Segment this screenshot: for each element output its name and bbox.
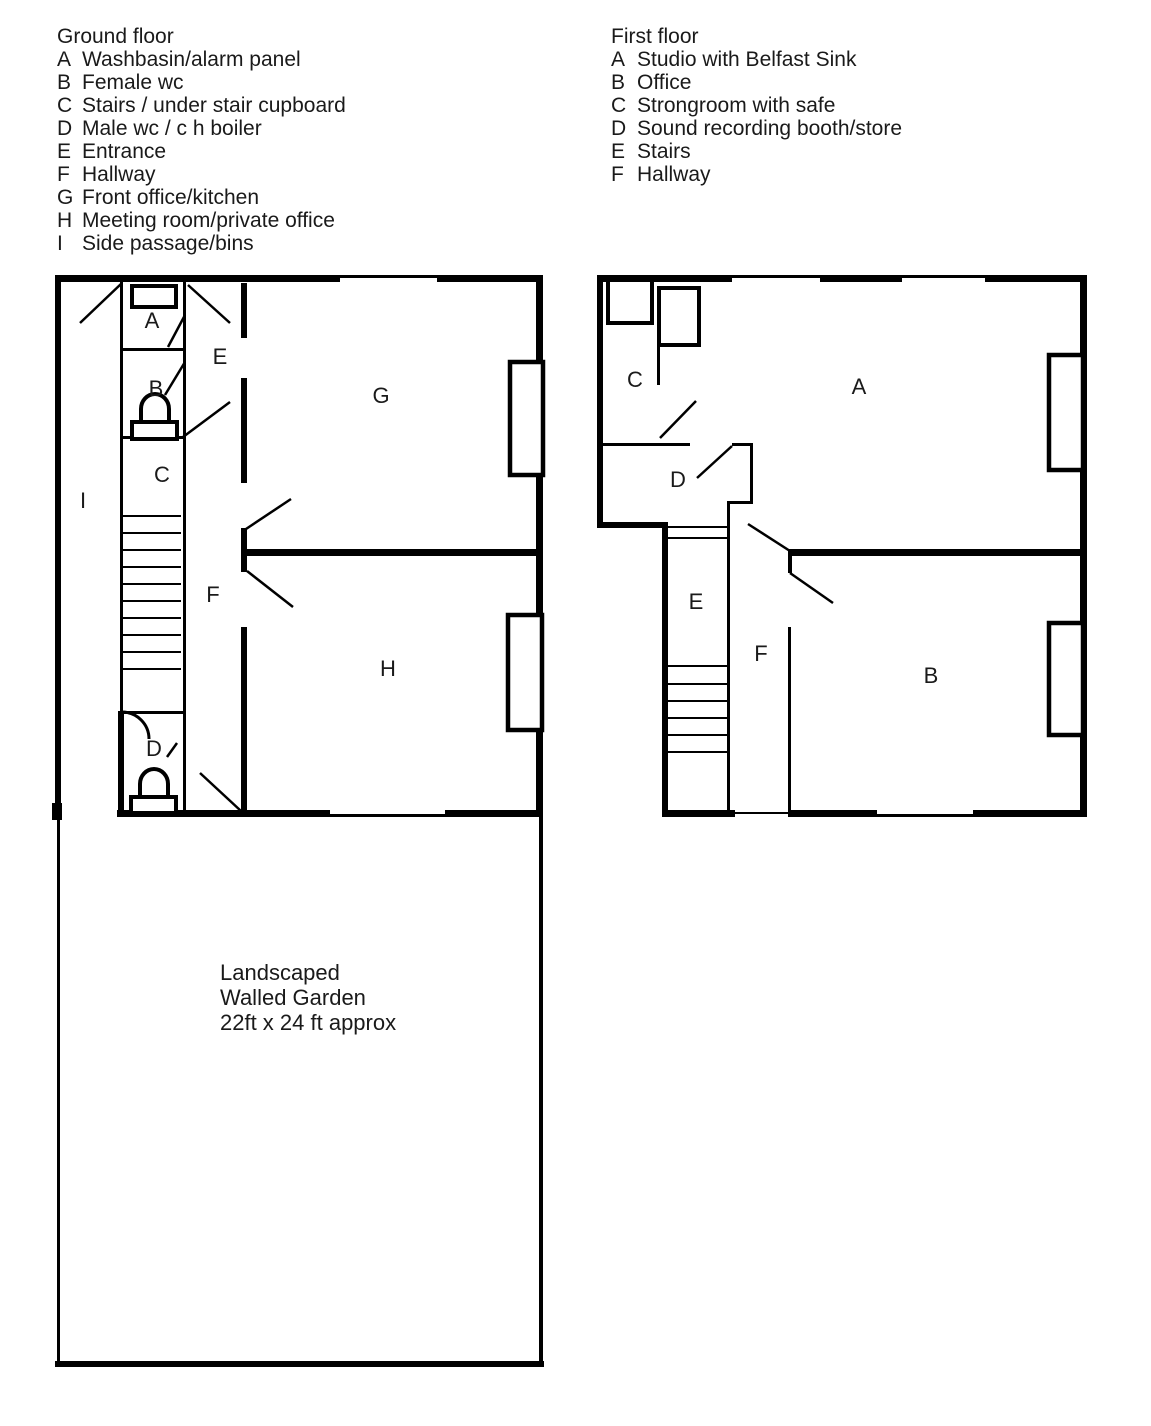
room-label-f: F (206, 582, 219, 607)
room-label-b: B (149, 376, 164, 401)
room-label-f: F (754, 641, 767, 666)
window-bottom-h (330, 814, 445, 817)
ground-floor-stairs (120, 515, 181, 670)
ground-floor-door-swings (80, 283, 293, 811)
room-label-i: I (80, 488, 86, 513)
room-label-d: D (670, 467, 686, 492)
window-top-right (902, 275, 985, 278)
window-room-a (1049, 355, 1083, 470)
room-label-a: A (145, 308, 160, 333)
window-top-left (732, 275, 820, 278)
room-label-b: B (924, 663, 939, 688)
garden-walls (55, 817, 544, 1367)
room-label-d: D (146, 736, 162, 761)
floorplan-drawing: A B C D E F G H I (0, 0, 1151, 1426)
first-floor-stairs (668, 665, 728, 753)
window-room-h (508, 615, 542, 730)
ground-floor-walls (52, 275, 543, 820)
room-label-a: A (852, 374, 867, 399)
room-label-e: E (213, 344, 228, 369)
safe-fixture (608, 280, 652, 323)
window-room-b (1049, 623, 1083, 735)
toilet-fixture-male-wc (131, 769, 176, 813)
ground-floor-room-labels: A B C D E F G H I (80, 308, 396, 761)
door-arc-male-wc (122, 712, 149, 739)
washbasin-fixture (132, 286, 176, 307)
room-label-e: E (689, 589, 704, 614)
room-label-c: C (627, 367, 643, 392)
room-label-c: C (154, 462, 170, 487)
strongroom-cabinet-fixture (659, 288, 699, 345)
window-room-g (510, 362, 543, 475)
ground-floor-plan: A B C D E F G H I (52, 275, 544, 1367)
window-bottom-b (877, 814, 973, 817)
floorplan-page: Ground floor AWashbasin/alarm panel BFem… (0, 0, 1151, 1426)
room-label-h: H (380, 656, 396, 681)
room-label-g: G (372, 383, 389, 408)
window-top-g (340, 275, 437, 278)
first-floor-plan: C A D E F B (597, 275, 1087, 817)
